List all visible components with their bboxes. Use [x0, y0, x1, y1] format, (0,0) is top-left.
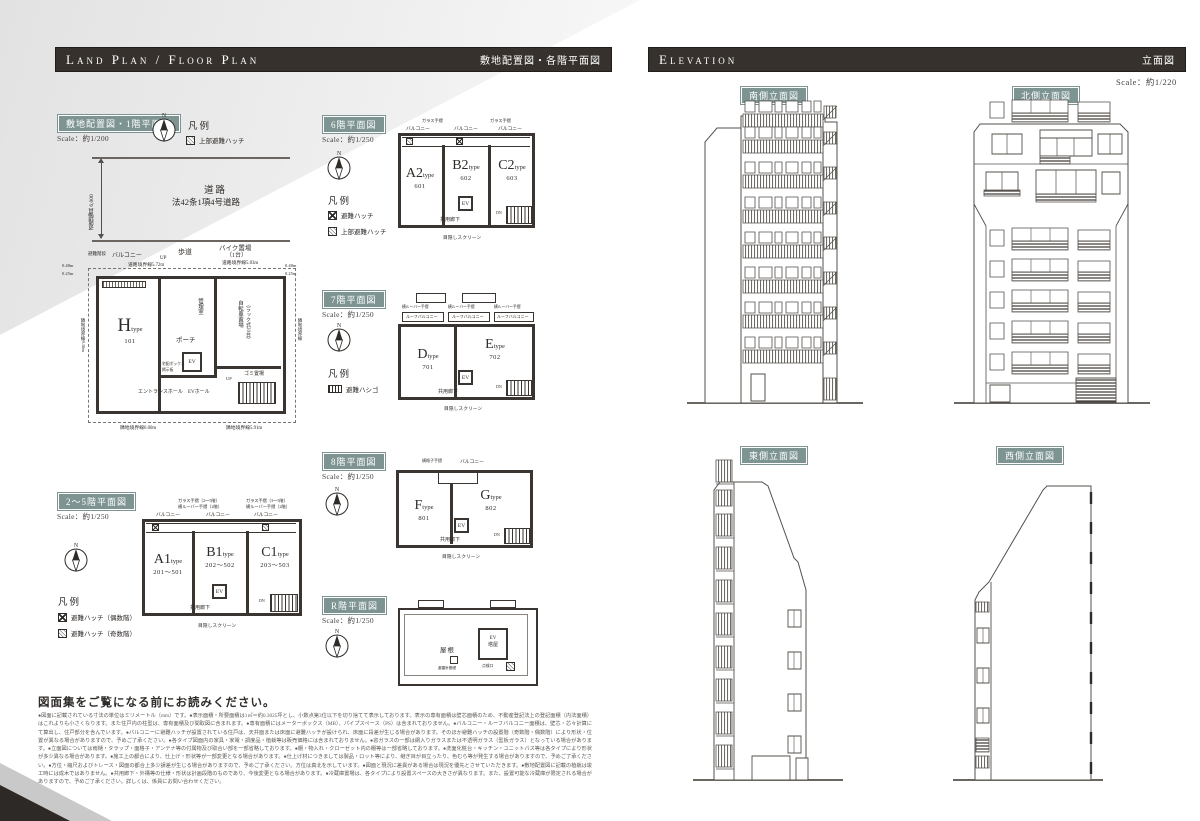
screen-label: 目隠しスクリーン [198, 622, 236, 629]
balcony-8f [438, 472, 478, 484]
f25-legend-item-1: 避難ハッチ（偶数階） [58, 612, 136, 622]
f7-scale: Scale：約1/250 [322, 309, 374, 320]
parapet-tab [462, 293, 496, 303]
stairs-2-5f [270, 594, 298, 612]
compass-f25: N [62, 540, 90, 574]
garbage-label: ゴミ置場 [244, 370, 264, 377]
balcony-label: バルコニー [454, 125, 478, 132]
floorplan-8f: 横格子手摺 バルコニー Ftype 801 Gtype 802 EV 共用廊下 … [396, 458, 536, 563]
bicycle-label2: （ラック式20台） [244, 302, 251, 342]
unit-rooms: 203～503 [252, 562, 298, 569]
f7-legend-label-1: 避難ハシゴ [346, 384, 379, 394]
unit-h: Htype 101 [104, 316, 156, 345]
bicycle-label: 自転車置場 [236, 300, 244, 328]
compass-site: N [150, 110, 178, 144]
wall [454, 327, 457, 397]
rail-label: 横格子手摺 [422, 458, 442, 464]
ev-label: EV [216, 589, 223, 595]
unit-type-word: type [469, 164, 480, 171]
corridor-label: 共用廊下 [190, 604, 210, 611]
unit-rooms: 101 [104, 338, 156, 345]
site-scale: Scale：約1/200 [57, 133, 109, 144]
unit-type-word: type [422, 504, 433, 511]
upper-hatch-icon [328, 227, 337, 236]
road-edge-bottom [92, 240, 290, 242]
f25-scale: Scale：約1/250 [57, 511, 109, 522]
section-label-f8: 8階平面図 [322, 452, 386, 471]
west-elevation-drawing [945, 460, 1110, 792]
left-header-subtitle: 敷地配置図・各階平面図 [480, 52, 601, 67]
rail-label: ガラス手摺 [422, 118, 443, 124]
dim-c2: 0.25m [62, 271, 73, 276]
compass-f6: N [325, 148, 353, 182]
road-law-label: 法42条1項4号道路 [172, 196, 240, 208]
wall [442, 145, 445, 225]
f8-scale: Scale：約1/250 [322, 471, 374, 482]
dn-label: DN [259, 598, 265, 603]
right-header-subtitle: 立面図 [1142, 52, 1175, 67]
screen-label: 目隠しスクリーン [443, 234, 481, 241]
f25-legend-label-1: 避難ハッチ（偶数階） [71, 612, 136, 622]
north-elevation-drawing [952, 100, 1152, 412]
stairs-1f [238, 382, 276, 404]
section-label-f25: 2～5階平面図 [57, 492, 136, 511]
unit-letter: B2 [452, 158, 468, 173]
arrowhead-up [98, 158, 104, 163]
road-edge-top [92, 157, 290, 159]
unit-letter: D [417, 347, 427, 362]
arrowhead-down [98, 234, 104, 239]
unit-letter: G [480, 488, 490, 503]
south-elevation-drawing [685, 100, 865, 412]
manager-room-label: 管理室 [196, 298, 204, 315]
road-label: 道路 [204, 182, 227, 196]
unit-rooms: 202～502 [197, 562, 243, 569]
right-header-title: Elevation [659, 52, 737, 68]
site-legend-label: 上部避難ハッチ [199, 135, 245, 145]
escape-hatch-odd-icon [58, 629, 67, 638]
f25-legend-title: 凡例 [58, 594, 81, 608]
wall [217, 366, 281, 369]
unit-rooms: 701 [406, 364, 450, 371]
unit-rooms: 702 [462, 354, 528, 361]
escape-hatch-icon [328, 211, 337, 220]
floorplan-2-5f: ガラス手摺（2～5階） 横ルーバー手摺（2階） ガラス手摺（3～5階） 横ルーバ… [142, 498, 310, 638]
left-header-title: Land Plan / Floor Plan [66, 52, 259, 68]
floorplan-6f: ガラス手摺 ガラス手摺 バルコニー バルコニー バルコニー A2type 601… [398, 118, 538, 248]
rail-label: 横ルーバー手摺 [402, 305, 429, 310]
balcony-label: バルコニー [498, 125, 522, 132]
unit-c2: C2type 603 [492, 156, 532, 182]
rail-label: 横ルーバー手摺（2階） [178, 504, 222, 510]
site-legend-item: 上部避難ハッチ [186, 135, 245, 145]
dim-right-site: 隣地境界線 [297, 318, 303, 341]
unit-type-word: type [423, 172, 434, 179]
roof-balcony-label: ルーフバルコニー [406, 314, 438, 320]
road-width-dim: 道路幅員 6,000 [88, 168, 96, 230]
unit-c1: C1type 203～503 [252, 543, 298, 569]
upper-hatch-icon [406, 138, 413, 145]
site-legend-title: 凡例 [188, 118, 211, 132]
compass-north-label: N [335, 629, 340, 635]
dim-bottom-left: 隣地境界線6.00m [120, 424, 156, 431]
screen-label: 目隠しスクリーン [444, 405, 482, 412]
ev-hall-label: EVホール [188, 388, 210, 395]
lightning-rod-label: 避雷針基礎 [438, 666, 456, 671]
escape-hatch-icon [58, 613, 67, 622]
unit-type-word: type [494, 343, 505, 350]
corridor-label: 共用廊下 [440, 536, 460, 543]
notice-title: 図面集をご覧になる前にお読みください。 [38, 694, 276, 710]
unit-g: Gtype 802 [458, 486, 524, 512]
unit-rooms: 801 [402, 515, 446, 522]
ev-label: EV [462, 375, 469, 381]
floorplan-1f: Htype 101 ポーチ 管理室 EV 宅配ボックス 掲示板 エントランスホー… [96, 276, 286, 414]
elevator-1f: EV [182, 352, 202, 372]
hatch-opening-icon [506, 662, 515, 671]
corridor-label: 共用廊下 [440, 216, 460, 223]
unit-letter: C1 [261, 545, 277, 560]
unit-letter: H [118, 315, 132, 336]
hatch-even-icon [152, 524, 159, 531]
sidewalk-label: 歩道 [178, 247, 192, 257]
unit-d: Dtype 701 [406, 345, 450, 371]
corridor-label: 共用廊下 [438, 388, 458, 395]
balcony-label: バルコニー [406, 125, 430, 132]
unit-type-word: type [490, 494, 501, 501]
compass-north-label: N [335, 487, 340, 493]
unit-rooms: 201～501 [146, 569, 190, 576]
unit-letter: C2 [498, 158, 514, 173]
unit-type-word: type [515, 164, 526, 171]
escape-ladder-icon [328, 385, 342, 393]
fr-scale: Scale：約1/250 [322, 615, 374, 626]
ev-tower-label2: 塔屋 [480, 641, 506, 648]
notice-board-label: 掲示板 [162, 368, 173, 373]
elevator-8f: EV [454, 518, 469, 533]
dn-label: DN [496, 210, 502, 215]
roof-balcony-label: ルーフバルコニー [497, 314, 529, 320]
compass-north-label: N [337, 323, 342, 329]
wall [158, 375, 217, 378]
ev-label: EV [458, 523, 465, 529]
section-label-fr: R階平面図 [322, 596, 387, 615]
rail-label: 横ルーバー手摺 [448, 305, 475, 310]
wall [192, 531, 195, 613]
brochure-page: Land Plan / Floor Plan 敷地配置図・各階平面図 Eleva… [0, 0, 1200, 821]
unit-type-word: type [171, 558, 182, 565]
f6-legend-label-1: 避難ハッチ [341, 210, 374, 220]
unit-rooms: 602 [446, 175, 486, 182]
balcony-label: バルコニー [460, 458, 484, 465]
balcony-label: バルコニー [206, 511, 230, 518]
dim-c1: 0.48m [62, 263, 73, 268]
ev-label: EV [462, 201, 469, 207]
upper-hatch-icon [186, 136, 195, 145]
escape-stair-label: 避難階段 [88, 251, 106, 257]
wall [246, 531, 249, 613]
compass-f7: N [325, 320, 353, 354]
parapet-tab [490, 600, 516, 608]
stairs-8f [504, 528, 530, 544]
balcony-label: バルコニー [254, 511, 278, 518]
f6-legend-title: 凡例 [328, 193, 351, 207]
unit-f: Ftype 801 [402, 496, 446, 522]
bike-count-label: （1台） [226, 250, 247, 259]
unit-letter: A2 [406, 166, 423, 181]
parapet-tab [418, 600, 444, 608]
balcony-label-1f: バルコニー [112, 250, 142, 259]
section-label-f6: 6階平面図 [322, 115, 386, 134]
rail-label: 横ルーバー手摺 [494, 305, 521, 310]
floorplan-roof: 屋根 EV 塔屋 避雷針基礎 点検口 [398, 600, 540, 692]
up-label-1f: UP [226, 376, 232, 381]
balcony-rail [402, 137, 530, 147]
wall [488, 145, 491, 225]
inspection-label: 点検口 [482, 664, 493, 669]
elevator-2-5f: EV [212, 584, 227, 599]
wall [450, 484, 453, 544]
stairs-7f [506, 380, 532, 396]
f6-legend-label-2: 上部避難ハッチ [341, 226, 387, 236]
elevator-6f: EV [458, 196, 473, 211]
section-label-f7: 7階平面図 [322, 290, 386, 309]
f25-legend-item-2: 避難ハッチ（奇数階） [58, 628, 136, 638]
f7-legend-item-1: 避難ハシゴ [328, 384, 379, 394]
compass-north-label: N [74, 543, 79, 549]
dn-label: DN [496, 384, 502, 389]
unit-e: Etype 702 [462, 335, 528, 361]
rail-label: ガラス手摺 [490, 118, 511, 124]
unit-a1: A1type 201～501 [146, 550, 190, 576]
road-width-dimline [101, 160, 102, 238]
hatch-odd-icon [262, 524, 269, 531]
stairs-6f [506, 206, 532, 224]
unit-letter: B1 [206, 545, 222, 560]
left-header-bar: Land Plan / Floor Plan 敷地配置図・各階平面図 [55, 47, 612, 72]
roof-label: 屋根 [440, 644, 455, 654]
elevator-7f: EV [458, 370, 473, 385]
wall [214, 279, 217, 375]
unit-type-word: type [427, 353, 438, 360]
escape-hatch-icon [456, 138, 463, 145]
unit-b1: B1type 202～502 [197, 543, 243, 569]
dim-top-right: 道路境界線5.83m [222, 259, 258, 266]
balcony-label: バルコニー [156, 511, 180, 518]
dim-top-left: 道路境界線5.72m [128, 261, 164, 268]
parapet-tab [416, 293, 446, 303]
unit-a2: A2type 601 [400, 164, 440, 190]
unit-rooms: 603 [492, 175, 532, 182]
unit-type-word: type [223, 551, 234, 558]
floorplan-7f: 横ルーバー手摺 横ルーバー手摺 横ルーバー手摺 ルーフバルコニー ルーフバルコニ… [398, 293, 538, 413]
unit-letter: A1 [154, 552, 171, 567]
lightning-rod-base [450, 656, 458, 664]
rail-label: 横ルーバー手摺（2階） [246, 504, 290, 510]
f7-legend-title: 凡例 [328, 366, 351, 380]
unit-type-word: type [131, 326, 142, 333]
ev-label: EV [188, 359, 195, 365]
dim-bottom-right: 隣地境界線5.91m [226, 424, 262, 431]
unit-type-word: type [278, 551, 289, 558]
delivery-box-label: 宅配ボックス [162, 362, 185, 367]
porch-label: ポーチ [176, 334, 196, 344]
right-header-bar: Elevation 立面図 [648, 47, 1186, 72]
f6-legend-item-1: 避難ハッチ [328, 210, 374, 220]
f25-legend-label-2: 避難ハッチ（奇数階） [71, 628, 136, 638]
screen-label: 目隠しスクリーン [442, 553, 480, 560]
east-elevation-drawing [688, 460, 848, 792]
entrance-hall-label: エントランスホール [138, 388, 183, 395]
dim-left-site: 隣地境界線9.10m [80, 318, 86, 352]
roof-balcony-label: ルーフバルコニー [452, 314, 484, 320]
f6-legend-item-2: 上部避難ハッチ [328, 226, 387, 236]
unit-rooms: 601 [400, 183, 440, 190]
unit-b2: B2type 602 [446, 156, 486, 182]
notice-body: ●図面に記載されている寸法の単位はミリメートル（mm）です。●表示面積・所要面積… [38, 712, 592, 787]
elevation-scale: Scale：約1/220 [1116, 76, 1177, 88]
compass-fr: N [323, 626, 351, 660]
dn-label: DN [494, 532, 500, 537]
ev-penthouse: EV 塔屋 [478, 628, 508, 660]
balcony-hatch-1f [102, 281, 146, 288]
unit-letter: E [485, 337, 494, 352]
balcony-rail [146, 523, 296, 533]
compass-north-label: N [162, 113, 167, 119]
f6-scale: Scale：約1/250 [322, 134, 374, 145]
compass-f8: N [323, 484, 351, 518]
compass-north-label: N [337, 151, 342, 157]
unit-rooms: 802 [458, 505, 524, 512]
